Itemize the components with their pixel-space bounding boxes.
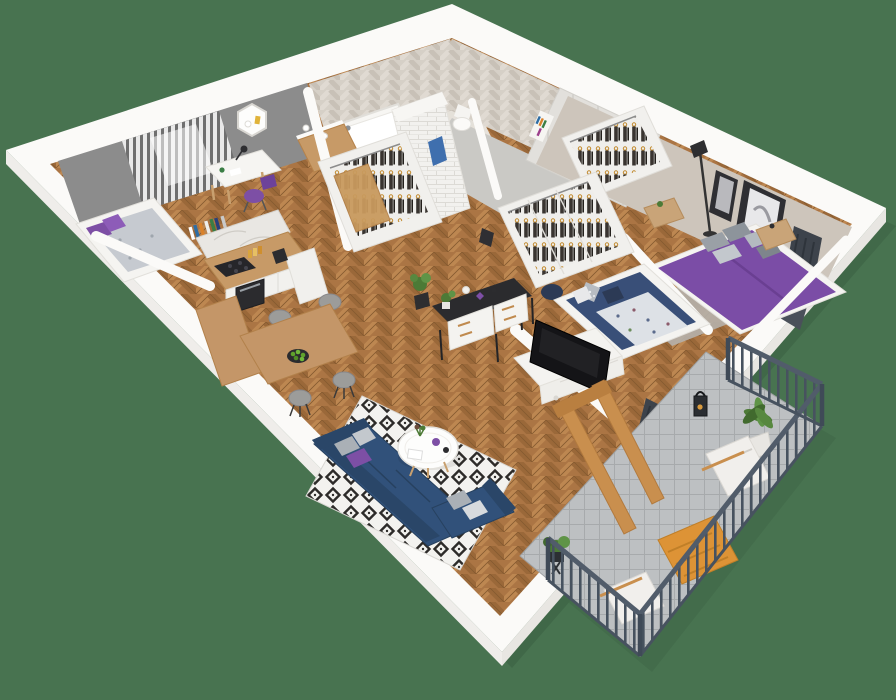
purple-vase bbox=[432, 438, 440, 446]
black-bowl bbox=[443, 447, 449, 453]
floorplan-stage bbox=[0, 0, 896, 700]
speaker bbox=[554, 396, 559, 401]
white-tray bbox=[407, 449, 422, 460]
hexagon-shelf bbox=[238, 104, 266, 136]
cat-figurine bbox=[303, 125, 309, 131]
floorplan-render bbox=[0, 0, 896, 700]
fruit-bowl bbox=[287, 349, 309, 363]
lantern bbox=[694, 392, 707, 416]
desk-lamp bbox=[241, 146, 248, 153]
toy bbox=[219, 167, 224, 172]
